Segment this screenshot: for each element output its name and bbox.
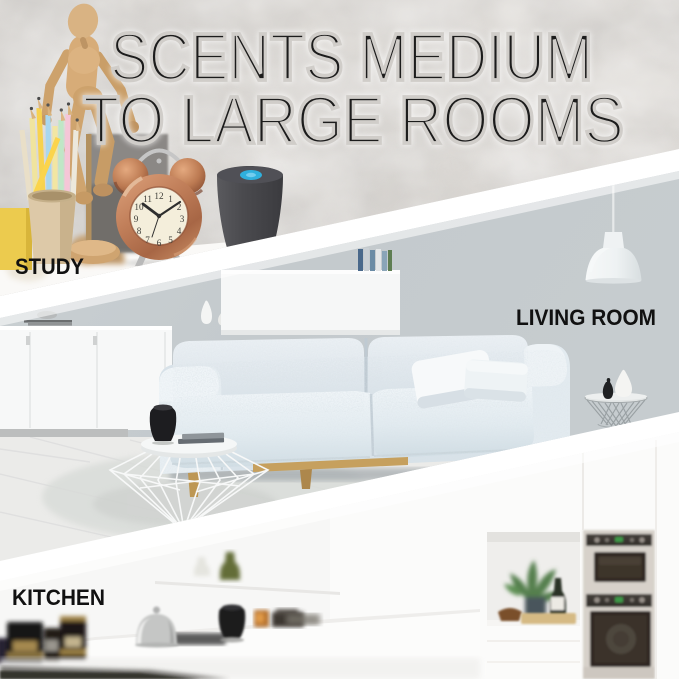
svg-text:7: 7 [145,235,150,245]
svg-text:11: 11 [143,194,152,204]
svg-text:6: 6 [157,238,162,248]
svg-text:TO LARGE ROOMS: TO LARGE ROOMS [83,83,624,158]
svg-text:9: 9 [134,214,139,224]
svg-text:4: 4 [177,226,182,236]
svg-text:8: 8 [137,226,142,236]
svg-text:5: 5 [168,235,173,245]
svg-text:STUDY: STUDY [15,254,84,279]
svg-text:LIVING ROOM: LIVING ROOM [516,305,656,330]
svg-text:12: 12 [154,191,164,201]
svg-text:3: 3 [180,214,185,224]
svg-text:KITCHEN: KITCHEN [12,585,105,610]
svg-text:1: 1 [168,194,173,204]
